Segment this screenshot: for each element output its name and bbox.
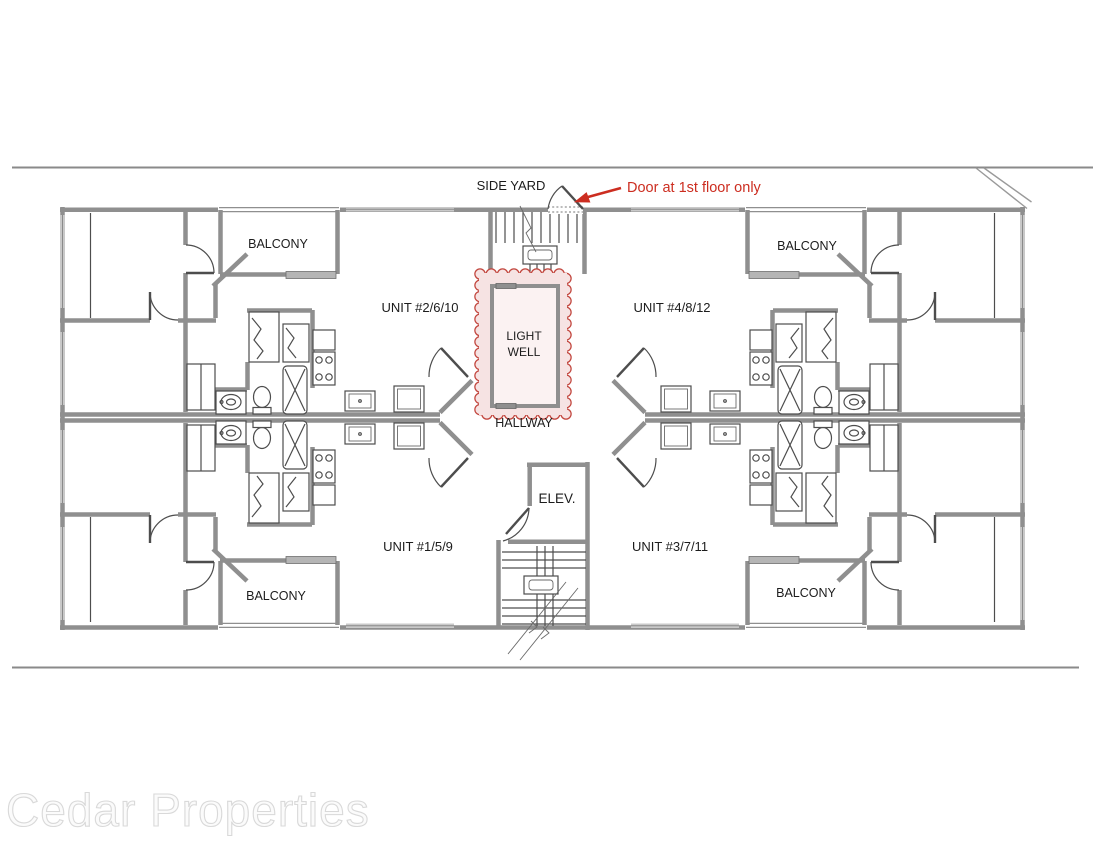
annotation-arrow-head xyxy=(574,192,590,202)
balcony-label-top-left: BALCONY xyxy=(248,237,308,251)
floor-plan-page: Door at 1st floor only SIDE YARD BALCONY… xyxy=(0,0,1093,844)
balcony-label-bottom-right: BALCONY xyxy=(776,586,836,600)
hallway-label: HALLWAY xyxy=(495,416,553,430)
light-well-label-line2: WELL xyxy=(508,345,541,359)
side-yard-label: SIDE YARD xyxy=(477,178,546,193)
core-stair-bottom xyxy=(499,540,587,660)
unit-label-top-left: UNIT #2/6/10 xyxy=(381,300,458,315)
balcony-label-top-right: BALCONY xyxy=(777,239,837,253)
unit-label-bottom-left: UNIT #1/5/9 xyxy=(383,539,453,554)
unit-label-top-right: UNIT #4/8/12 xyxy=(633,300,710,315)
door-note-label: Door at 1st floor only xyxy=(627,180,762,196)
balcony-label-bottom-left: BALCONY xyxy=(246,589,306,603)
floor-plan-svg: Door at 1st floor only SIDE YARD BALCONY… xyxy=(0,0,1093,844)
door-annotation: Door at 1st floor only xyxy=(574,180,762,203)
unit-label-bottom-right: UNIT #3/7/11 xyxy=(632,539,708,554)
elevator-label: ELEV. xyxy=(538,491,575,506)
core-stair-top xyxy=(491,206,585,277)
light-well-label-line1: LIGHT xyxy=(506,329,542,343)
annotation-arrow-line xyxy=(588,188,621,197)
watermark-logo: Cedar Properties xyxy=(6,784,370,836)
light-well xyxy=(479,273,567,415)
